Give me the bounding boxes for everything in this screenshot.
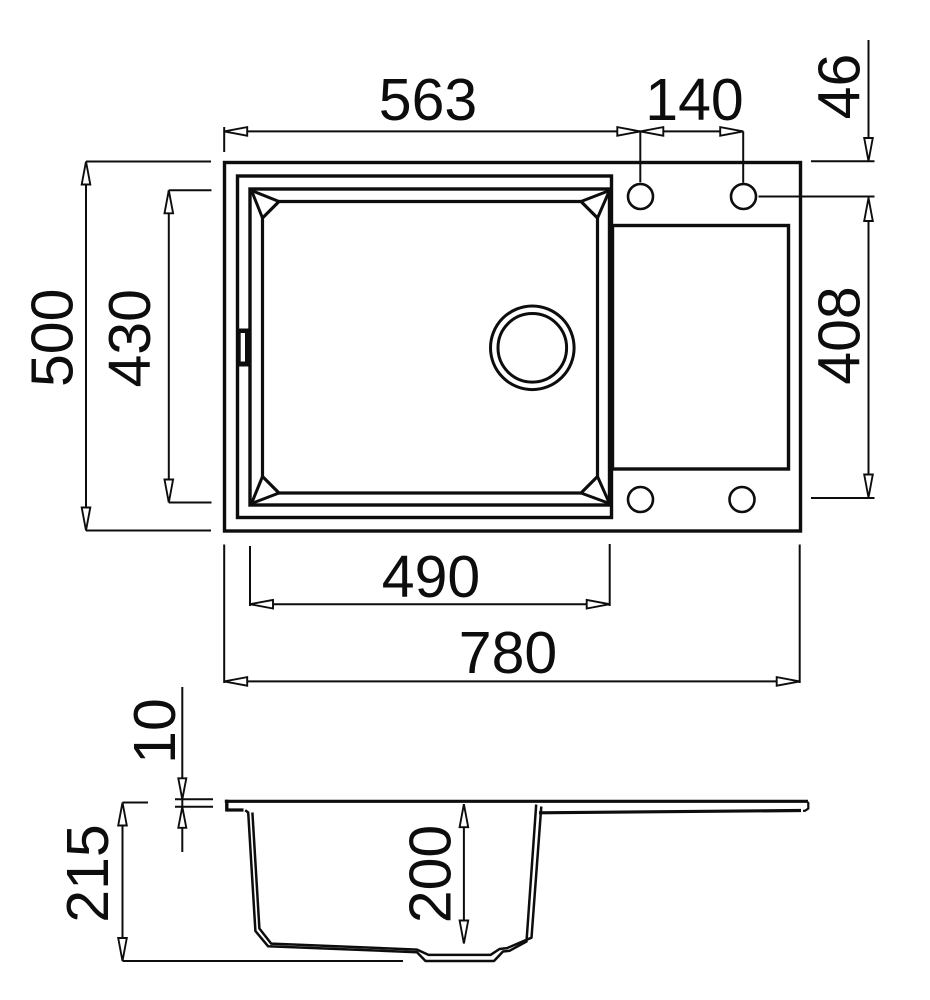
svg-text:490: 490 bbox=[382, 544, 480, 610]
svg-text:140: 140 bbox=[645, 67, 743, 133]
svg-text:563: 563 bbox=[379, 67, 477, 133]
svg-text:430: 430 bbox=[97, 289, 163, 387]
svg-text:500: 500 bbox=[19, 289, 85, 387]
svg-text:10: 10 bbox=[122, 698, 188, 764]
svg-text:200: 200 bbox=[398, 825, 464, 923]
svg-text:780: 780 bbox=[459, 620, 557, 686]
svg-text:408: 408 bbox=[807, 286, 873, 384]
svg-text:46: 46 bbox=[806, 54, 872, 120]
svg-text:215: 215 bbox=[55, 824, 121, 922]
